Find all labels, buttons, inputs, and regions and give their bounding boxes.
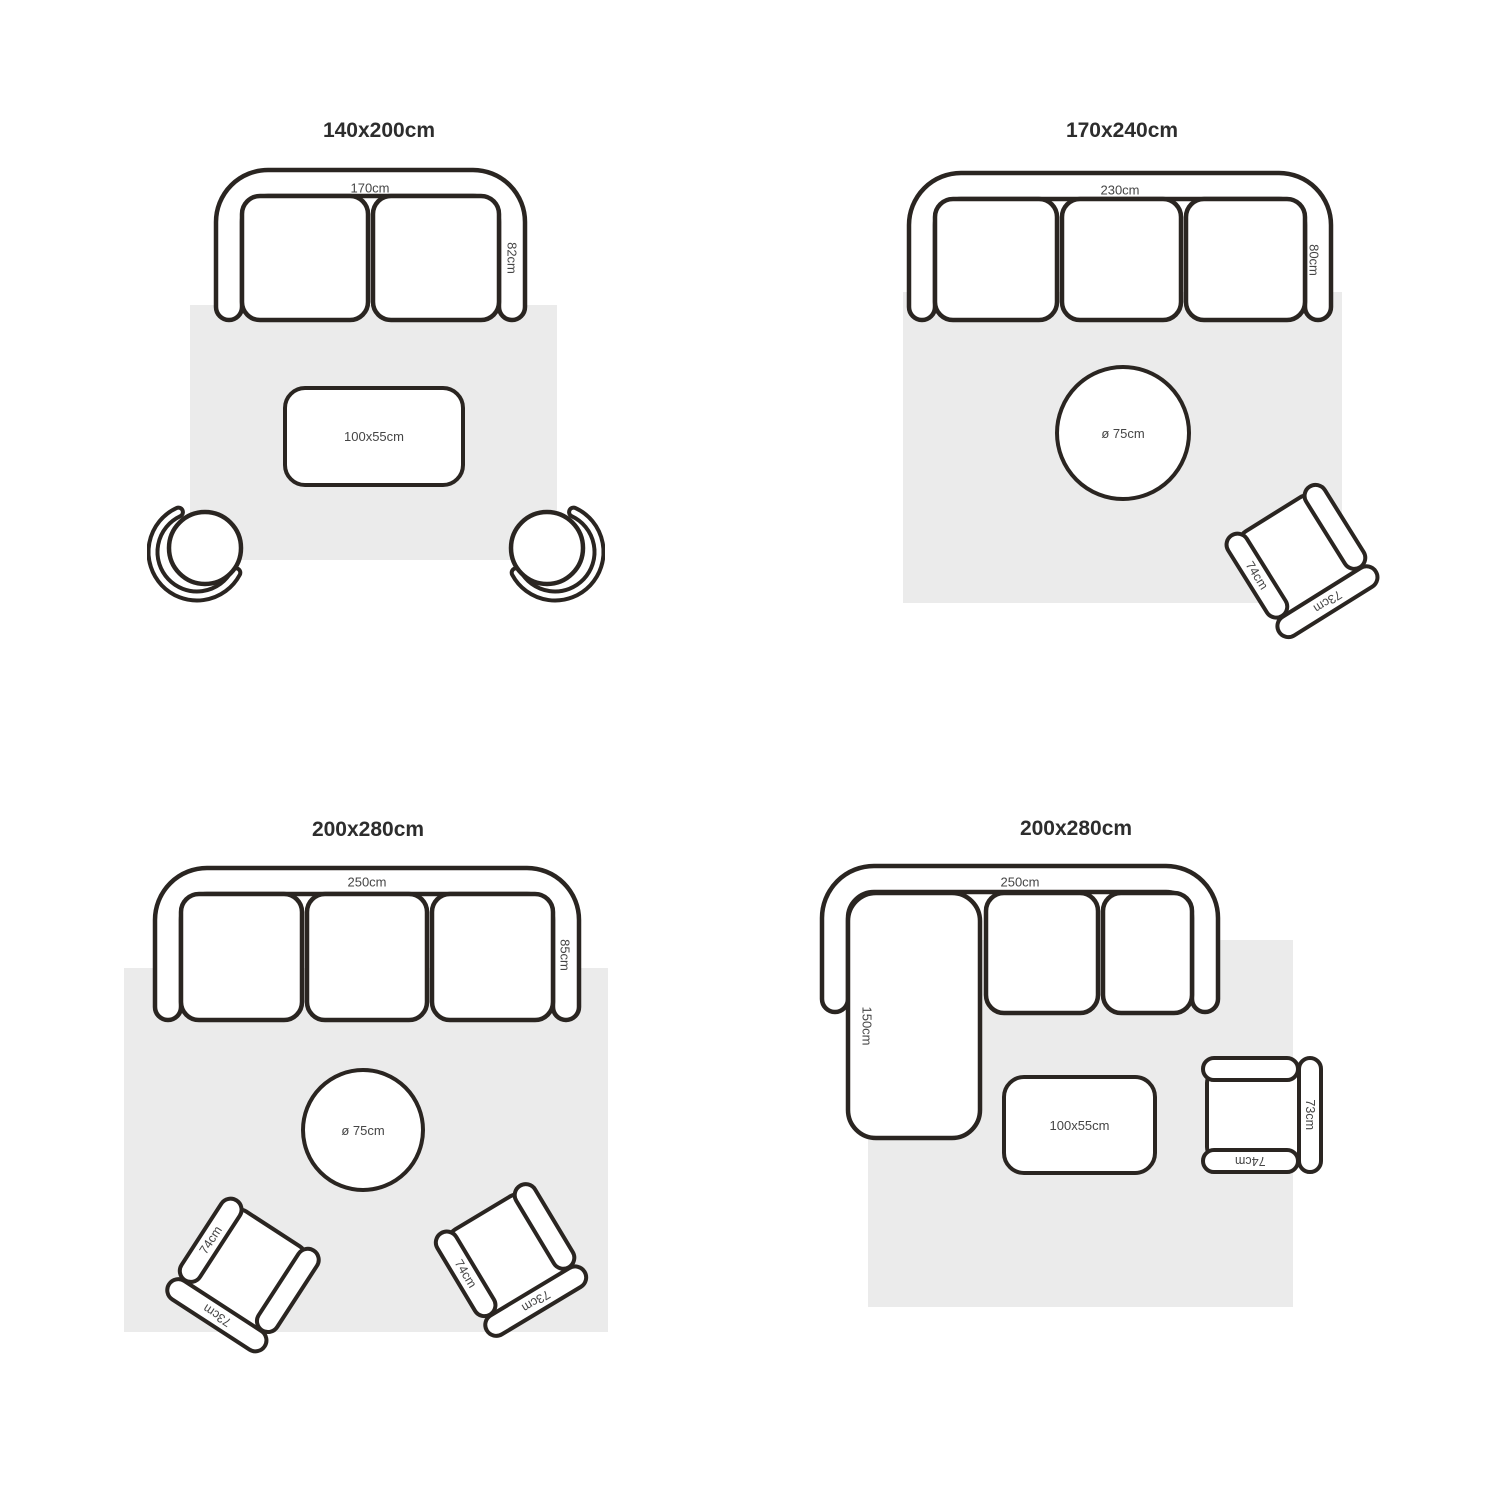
sofa-cushion <box>181 894 302 1020</box>
sofa-cushion <box>307 894 427 1020</box>
sofa-cushion <box>373 196 499 320</box>
sofa-cushion <box>1062 199 1181 320</box>
layout-title-170x240: 170x240cm <box>1066 119 1178 143</box>
armchair-arm-label: 74cm <box>1235 1154 1266 1168</box>
sofa-cushion <box>432 894 553 1020</box>
coffee-table: 100x55cm <box>1002 1075 1157 1175</box>
round-table: ø 75cm <box>1055 365 1191 501</box>
round-table: ø 75cm <box>301 1068 425 1192</box>
sofa-width-label: 250cm <box>1000 875 1039 890</box>
sofa-cushion <box>1103 893 1192 1013</box>
round-table-size-label: ø 75cm <box>1101 426 1144 441</box>
coffee-table-size-label: 100x55cm <box>344 429 404 444</box>
stool-seat <box>169 512 241 584</box>
armchair-back: 73cm <box>1297 1056 1323 1174</box>
coffee-table-size-label: 100x55cm <box>1050 1118 1110 1133</box>
stool-left <box>147 493 257 603</box>
chaise-depth-label: 150cm <box>860 1006 875 1045</box>
stool-seat <box>511 512 583 584</box>
sofa-width-label: 170cm <box>350 181 389 196</box>
armchair: 73cm 74cm <box>1201 1056 1323 1174</box>
sofa-width-label: 230cm <box>1100 183 1139 198</box>
sofa-depth-label: 80cm <box>1307 244 1322 276</box>
coffee-table: 100x55cm <box>283 386 465 487</box>
layout-title-140x200: 140x200cm <box>323 119 435 143</box>
layout-title-200x280-right: 200x280cm <box>1020 817 1132 841</box>
sofa-depth-label: 85cm <box>558 939 573 971</box>
armchair-arm-left: 74cm <box>1201 1148 1300 1174</box>
sofa-width-label: 250cm <box>347 875 386 890</box>
sofa-cushion <box>935 199 1057 320</box>
armchair-arm-right <box>1201 1056 1300 1082</box>
sofa-cushion <box>986 893 1098 1013</box>
sofa-cushion <box>242 196 368 320</box>
layout-title-200x280-left: 200x280cm <box>312 818 424 842</box>
round-table-size-label: ø 75cm <box>341 1123 384 1138</box>
sofa-depth-label: 82cm <box>505 242 520 274</box>
rug-size-guide: 140x200cm 170cm 82cm 100x55cm 170x240cm … <box>0 0 1500 1500</box>
armchair-back-label: 73cm <box>1303 1100 1317 1131</box>
stool-right <box>495 493 605 603</box>
sofa-cushion <box>1186 199 1305 320</box>
